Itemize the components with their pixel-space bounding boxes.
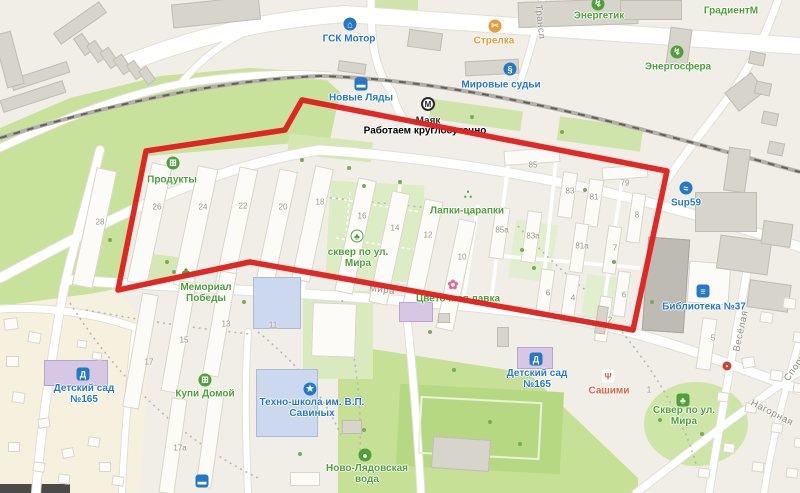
tree-dot [242,300,246,304]
tree-dot [560,130,564,134]
building-number: 7 [613,244,617,253]
building-number: 24 [199,203,208,212]
tree-dot [428,330,432,334]
building[interactable] [57,473,70,485]
building[interactable] [399,302,433,322]
tree-icon[interactable]: ♣ [351,230,364,243]
metro-icon[interactable]: М [421,97,435,111]
building-number: 12 [424,231,433,240]
building[interactable] [497,327,509,347]
wave-icon[interactable]: ≈ [680,182,693,195]
building-number: 79 [621,179,630,188]
poi-label[interactable]: ГрадиентМ [704,6,758,17]
paw-icon[interactable]: ∴ [461,188,475,202]
tree-dot [488,420,492,424]
building-number: 1 [647,386,651,395]
tree-dot [172,270,176,274]
building[interactable] [32,461,45,473]
book-icon[interactable]: ≡ [697,285,710,298]
building[interactable] [716,391,729,403]
building[interactable] [76,339,87,349]
building-number: 83а [526,232,539,241]
kindergarten-icon[interactable]: Д [530,353,543,366]
building-number: 5 [711,334,715,343]
building[interactable] [87,436,100,448]
building-number: 85 [529,161,538,170]
poi-label[interactable]: Энергетик [574,11,624,22]
building[interactable] [61,447,75,459]
tree-dot [520,248,524,252]
building[interactable] [792,382,800,394]
poi-label[interactable]: Стрелка [474,36,515,47]
poi-label[interactable]: Новые Ляды [329,93,393,104]
tree-dot [583,188,587,192]
bus-stop-icon[interactable]: ▬ [355,78,368,91]
building-number: 14 [391,224,400,233]
poi-label[interactable]: Библиотека №37 [662,302,746,313]
building[interactable] [759,311,773,324]
tree-dot [532,266,536,270]
school-icon[interactable]: ★ [304,383,317,396]
building[interactable] [27,331,42,344]
building[interactable] [311,302,357,358]
building[interactable] [431,436,491,472]
scissors-icon[interactable]: ✂ [489,20,502,33]
building[interactable] [741,356,756,369]
kindergarten-icon[interactable]: Д [77,368,90,381]
building-number: 15 [180,336,189,345]
poi-label[interactable]: ГСК Мотор [323,34,376,45]
building[interactable] [11,391,25,404]
building[interactable] [99,462,111,472]
tree-dot [518,442,522,446]
tree-dot [298,452,302,456]
building[interactable] [6,356,19,367]
building[interactable] [760,220,793,248]
poi-label[interactable]: Детский сад№165 [507,368,568,390]
building-number: 81а [575,242,588,251]
building[interactable] [751,461,764,473]
building-number: 85а [495,226,508,235]
tree-dot [362,184,366,188]
building[interactable] [290,472,320,486]
building[interactable] [620,0,682,20]
building-number: 13 [222,320,231,329]
map-canvas[interactable]: 2826242220181614121085838179885а83а81а76… [0,0,800,493]
building-number: 4 [571,294,575,303]
building[interactable] [3,317,19,331]
building-number: 83 [566,187,575,196]
building[interactable] [782,297,796,310]
home-icon[interactable]: ⌂ [344,18,357,31]
poi-label[interactable]: сквер по ул.Мира [328,247,389,269]
building-number: 28 [96,218,105,227]
building-number: 8 [635,211,639,220]
building-number: 10 [458,253,467,262]
building-number: 26 [153,203,162,212]
building-number: 2 [608,316,612,325]
tree-dot [398,180,402,184]
tree-dot [612,260,616,264]
building-number: 20 [279,203,288,212]
tree-dot [108,238,112,242]
poi-label[interactable]: Техно-школа им. В.П.Савиных [260,397,365,419]
poi-label[interactable]: МемориалПобеды [180,282,231,304]
building-number: 18 [316,198,325,207]
building-number: 22 [239,202,248,211]
tree-dot [300,158,304,162]
basket-icon[interactable]: ⊞ [167,157,180,170]
cart-icon[interactable]: ⊞ [199,374,212,387]
tree-dot [452,368,456,372]
poi-label[interactable]: Продукты [147,175,197,186]
food-icon[interactable]: Ψ [602,370,615,383]
building[interactable] [722,442,735,454]
tree-dot [362,428,366,432]
poi-label[interactable]: Детский сад№165 [54,383,115,405]
poi-label[interactable]: Лапки-царапки [430,206,504,217]
tree-dot [347,166,351,170]
marker-icon[interactable]: ▬ [196,475,209,488]
flower-icon[interactable]: ✿ [446,278,460,292]
poi-label[interactable]: Сашими [589,386,630,397]
water-icon[interactable]: ● [359,449,372,462]
poi-status: Работаем круглосуточно [364,126,487,137]
building-number: 6 [622,291,626,300]
building-number: 6 [546,289,550,298]
building[interactable] [438,313,450,323]
tree-dot [134,198,138,202]
building-number: 17а [173,444,186,453]
road [246,332,248,493]
poi-label[interactable]: Ново-Лядовскаявода [326,463,408,485]
poi-label[interactable]: Сквер по ул.Мира [653,405,715,427]
tree-dot [470,115,474,119]
poi-label[interactable]: Энергосфера [645,62,711,73]
building-number: 17 [145,358,154,367]
poi-label[interactable]: Sup59 [671,198,701,209]
map-area [557,116,644,151]
building-number: 16 [358,212,367,221]
building[interactable] [111,475,124,487]
poi-label[interactable]: Цветочная лавка [416,294,500,305]
building[interactable] [697,467,710,479]
tree-dot [650,300,654,304]
poi-label[interactable]: Мировые судьи [461,80,540,91]
justice-icon[interactable]: § [504,63,517,76]
building-number: 81 [590,193,599,202]
building[interactable] [785,467,798,479]
building[interactable] [91,351,102,361]
tree-dot [165,260,169,264]
building[interactable] [642,237,690,334]
tree-icon[interactable]: ♣ [179,264,193,278]
building[interactable] [695,192,757,232]
building[interactable] [8,442,20,452]
building-number: 11 [269,321,277,330]
building[interactable] [793,437,800,449]
building[interactable] [342,420,362,434]
poi-label[interactable]: Купи Домой [175,389,234,400]
building[interactable] [37,417,50,429]
tree-dot [700,432,704,436]
lightning-icon[interactable]: ↯ [671,46,684,59]
building[interactable] [792,331,800,344]
shop-marker-icon[interactable]: ● [723,362,732,371]
